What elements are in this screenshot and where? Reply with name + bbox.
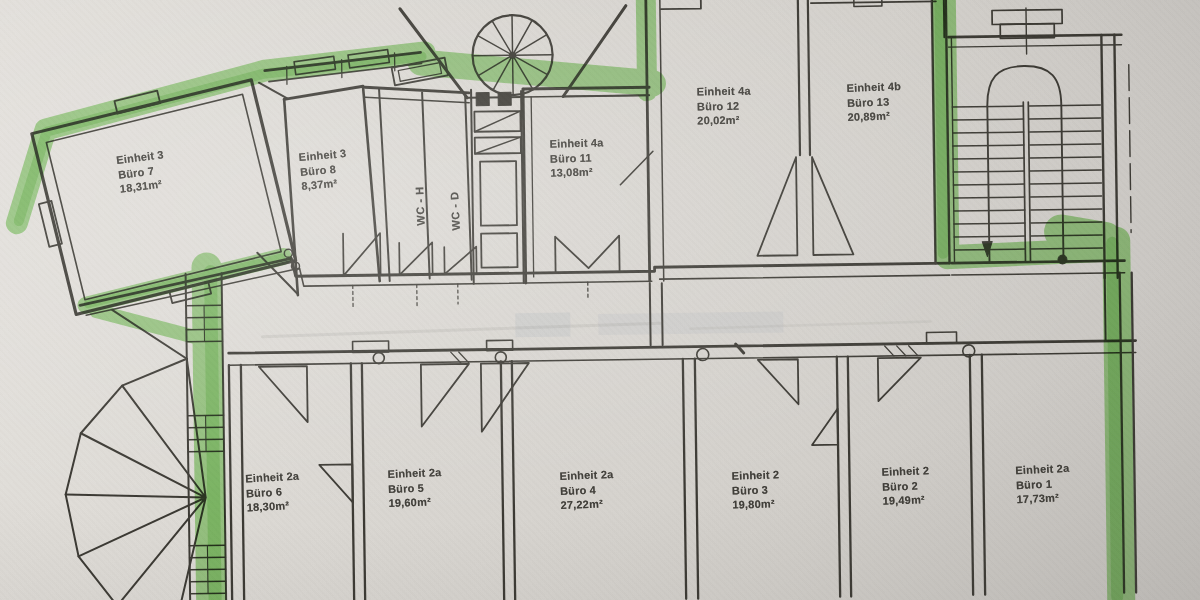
room-area: 19,80m² <box>732 497 780 513</box>
room-area: 20,02m² <box>697 113 751 129</box>
faint-corridor-marks <box>262 307 930 340</box>
room-unit: Einheit 4a <box>697 84 751 100</box>
room-unit: Einheit 4b <box>846 79 901 96</box>
room-label-buro-12: Einheit 4a Büro 12 20,02m² <box>697 84 752 129</box>
wall-b12-b13 <box>754 0 940 256</box>
room-unit: Einheit 2 <box>881 463 929 479</box>
room-area: 19,49m² <box>882 493 930 509</box>
room-area: 17,73m² <box>1016 490 1071 507</box>
room-area: 20,89m² <box>847 109 902 126</box>
room-name: Büro 3 <box>732 482 780 498</box>
room-label-buro-13: Einheit 4b Büro 13 20,89m² <box>846 79 902 125</box>
room-area: 18,30m² <box>246 498 301 516</box>
room-name: Büro 11 <box>550 150 604 166</box>
double-door-swing <box>555 236 619 273</box>
room-label-buro-3: Einheit 2 Büro 3 19,80m² <box>731 467 780 512</box>
room-label-buro-1: Einheit 2a Büro 1 17,73m² <box>1015 461 1071 508</box>
room-label-buro-2: Einheit 2 Büro 2 19,49m² <box>881 463 930 509</box>
room-label-buro-5: Einheit 2a Büro 5 19,60m² <box>387 465 442 511</box>
room-area: 13,08m² <box>550 165 604 181</box>
room-unit: Einheit 2a <box>387 465 441 482</box>
room-unit: Einheit 2a <box>245 469 300 487</box>
room-label-buro-4: Einheit 2a Büro 4 27,22m² <box>559 467 614 513</box>
room-label-buro-8: Einheit 3 Büro 8 8,37m² <box>298 146 349 194</box>
wc-h-label: WC - H <box>413 174 427 238</box>
shaft-column <box>471 89 524 284</box>
room-name: Büro 12 <box>697 98 751 114</box>
room-name: Büro 2 <box>882 478 930 494</box>
room-unit: Einheit 2a <box>1015 461 1070 478</box>
room-area: 19,60m² <box>388 495 442 512</box>
room-unit: Einheit 2 <box>731 467 779 483</box>
scanned-floor-plan: Einheit 3 Büro 7 18,31m² Einheit 3 Büro … <box>0 0 1200 600</box>
room-unit: Einheit 2a <box>559 467 613 484</box>
room-area: 27,22m² <box>560 497 614 514</box>
room-label-buro-6: Einheit 2a Büro 6 18,30m² <box>245 469 301 516</box>
room-label-buro-7: Einheit 3 Büro 7 18,31m² <box>115 147 168 197</box>
room-unit: Einheit 4a <box>549 135 603 151</box>
room-buro-11-outline <box>523 87 655 301</box>
room-label-buro-11: Einheit 4a Büro 11 13,08m² <box>549 135 604 181</box>
